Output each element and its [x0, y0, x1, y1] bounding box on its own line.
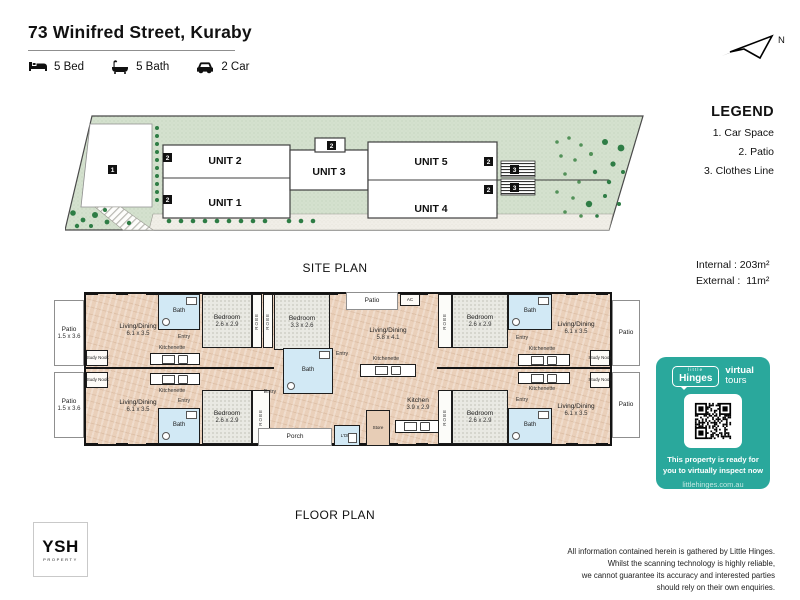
room-dimensions: 6.1 x 3.5 [564, 329, 587, 335]
room-label: Bath [173, 422, 185, 429]
bedroom-bottom-right: Bedroom2.6 x 2.9 [452, 390, 508, 444]
bath-bottom-left: Bath [158, 408, 200, 444]
room-label: AC [407, 297, 413, 302]
room-label: Kitchenette [159, 388, 186, 394]
bath-bottom-right: Bath [508, 408, 552, 444]
disclaimer: All information contained herein is gath… [567, 546, 775, 594]
bubble-tail [680, 386, 688, 390]
room-dimensions: 1.5 x 3.6 [57, 334, 80, 340]
bedroom-top-right: Bedroom2.6 x 2.9 [452, 294, 508, 348]
patio-bottom-left: Patio1.5 x 3.6 [54, 372, 84, 438]
patio-top-right: Patio [612, 300, 640, 366]
floor-plan: Patio1.5 x 3.6Patio1.5 x 3.6Living/Dinin… [52, 292, 642, 446]
site-marker-number: 2 [330, 143, 334, 150]
kitchenette-bottom-left: Kitchenette [159, 388, 186, 394]
patio-bottom-right: Patio [612, 372, 640, 438]
room-dimensions: 3.3 x 2.6 [290, 323, 313, 329]
room-label: Living/Dining [119, 399, 156, 407]
room-label: Living/Dining [369, 327, 406, 335]
north-arrow-icon: N [720, 28, 792, 67]
promo-message: This property is ready for you to virtua… [663, 454, 763, 476]
room-label: Entry [178, 334, 190, 340]
feature-label: 2 Car [221, 61, 249, 73]
room-label: Bedroom [289, 315, 315, 323]
living-middle: Living/Dining5.8 x 4.1 [369, 327, 406, 341]
legend-title: LEGEND [704, 104, 774, 120]
kitchenette-units-middle [360, 364, 416, 377]
robe-bottom-right: ROBE [438, 390, 452, 444]
kitchenette-units-bottom-right [518, 372, 570, 384]
room-label: Living/Dining [557, 403, 594, 411]
bath-middle: Bath [283, 348, 333, 394]
cooktop-icon [162, 375, 175, 384]
agency-logo: YSH PROPERTY [33, 522, 88, 577]
porch: Porch [258, 428, 332, 446]
site-marker-number: 3 [513, 167, 517, 174]
agency-name: YSH [42, 538, 78, 555]
area-line: External : 11m² [696, 274, 770, 290]
legend-items: 1. Car Space2. Patio3. Clothes Line [704, 127, 774, 177]
room-label: Patio [619, 401, 634, 409]
disclaimer-line: All information contained herein is gath… [567, 546, 775, 558]
bedroom-bottom-left: Bedroom2.6 x 2.9 [202, 390, 252, 444]
room-label: Study Nook [588, 377, 611, 382]
logo-bubble: little Hinges [672, 366, 719, 387]
entry-middle-top: Entry [336, 351, 348, 357]
room-label: Kitchenette [159, 345, 186, 351]
kitchen-units-middle [395, 420, 439, 433]
room-dimensions: 6.1 x 3.5 [126, 331, 149, 337]
title-divider [28, 50, 235, 51]
room-label: Living/Dining [557, 321, 594, 329]
entry-top-right: Entry [516, 335, 528, 341]
disclaimer-line: should rely on their own enquiries. [567, 582, 775, 594]
room-label: Kitchen [407, 397, 429, 405]
room-label: Entry [336, 351, 348, 357]
cooktop-icon [404, 422, 417, 431]
room-label: Patio [365, 297, 380, 305]
robe-2-top-left: ROBE [263, 294, 273, 348]
ac-unit: AC [400, 294, 420, 306]
room-dimensions: 6.1 x 3.5 [126, 407, 149, 413]
bath-top-left: Bath [158, 294, 200, 330]
robe-1-top-left: ROBE [252, 294, 262, 348]
entry-bottom-right: Entry [516, 397, 528, 403]
store: Store [366, 410, 390, 446]
room-label: Study Nook [588, 355, 611, 360]
party-wall-left [84, 367, 274, 369]
cooktop-icon [375, 366, 388, 375]
laundry: L'DRY [334, 425, 360, 446]
room-dimensions: 2.6 x 2.9 [468, 418, 491, 424]
area-line: Internal : 203m² [696, 258, 770, 274]
sink-icon [391, 366, 401, 375]
site-unit-label: UNIT 2 [208, 155, 241, 167]
room-label: Living/Dining [119, 323, 156, 331]
room-label: Patio [62, 326, 77, 334]
room-dimensions: 2.6 x 2.9 [215, 322, 238, 328]
site-marker-number: 1 [111, 167, 115, 174]
room-dimensions: 2.6 x 2.9 [215, 418, 238, 424]
feature-bath: 5 Bath [110, 59, 169, 74]
kitchenette-top-right: Kitchenette [529, 346, 556, 352]
site-plan-caption: SITE PLAN [230, 261, 440, 275]
room-label: Entry [516, 335, 528, 341]
bath-top-right: Bath [508, 294, 552, 330]
study-nook-bottom-right: Study Nook [590, 372, 610, 388]
room-label: Bath [524, 308, 536, 315]
living-bottom-right: Living/Dining6.1 x 3.5 [557, 403, 594, 417]
room-label: ROBE [265, 313, 270, 330]
kitchen-middle: Kitchen3.9 x 2.9 [406, 397, 429, 411]
legend: LEGEND 1. Car Space2. Patio3. Clothes Li… [704, 104, 774, 184]
room-label: ROBE [258, 409, 263, 426]
patio-top-left: Patio1.5 x 3.6 [54, 300, 84, 366]
room-label: Bath [173, 308, 185, 315]
little-hinges-logo: little Hinges virtual tours [672, 366, 754, 387]
room-label: Entry [516, 397, 528, 403]
room-label: ROBE [254, 313, 259, 330]
legend-item: 2. Patio [704, 146, 774, 158]
property-features: 5 Bed5 Bath2 Car [28, 59, 249, 74]
north-label: N [778, 35, 785, 46]
room-label: Bedroom [214, 410, 240, 418]
cooktop-icon [531, 356, 544, 365]
cooktop-icon [531, 374, 544, 383]
room-label: Bath [302, 367, 314, 374]
room-label: Bath [524, 422, 536, 429]
kitchenette-bottom-right: Kitchenette [529, 386, 556, 392]
room-label: Kitchenette [529, 346, 556, 352]
room-dimensions: 1.5 x 3.6 [57, 406, 80, 412]
disclaimer-line: we cannot guarantee its accuracy and int… [567, 570, 775, 582]
entry-middle-bottom: Entry [264, 389, 276, 395]
legend-item: 1. Car Space [704, 127, 774, 139]
bed-icon [28, 59, 48, 74]
room-label: L'DRY [341, 433, 354, 438]
patio-middle: Patio [346, 292, 398, 310]
feature-bed: 5 Bed [28, 59, 84, 74]
floor-plan-caption: FLOOR PLAN [230, 508, 440, 522]
site-marker-number: 2 [166, 197, 170, 204]
study-nook-top-right: Study Nook [590, 350, 610, 366]
site-unit-label: UNIT 3 [312, 166, 345, 178]
bedroom-top-left: Bedroom2.6 x 2.9 [202, 294, 252, 348]
kitchenette-units-top-left [150, 353, 200, 365]
feature-car: 2 Car [195, 59, 249, 74]
living-top-right: Living/Dining6.1 x 3.5 [557, 321, 594, 335]
site-marker-number: 2 [487, 159, 491, 166]
feature-label: 5 Bath [136, 61, 169, 73]
kitchenette-top-left: Kitchenette [159, 345, 186, 351]
site-marker-number: 3 [513, 185, 517, 192]
room-label: Bedroom [467, 314, 493, 322]
room-dimensions: 2.6 x 2.9 [468, 322, 491, 328]
robe-top-right: ROBE [438, 294, 452, 348]
study-nook-top-left: Study Nook [86, 350, 108, 366]
kitchenette-units-top-right [518, 354, 570, 366]
room-dimensions: 3.9 x 2.9 [406, 405, 429, 411]
room-label: Kitchenette [529, 386, 556, 392]
site-marker-number: 2 [487, 187, 491, 194]
product-word-2: tours [725, 376, 754, 386]
sink-icon [547, 356, 557, 365]
room-label: Study Nook [85, 355, 108, 360]
room-label: ROBE [442, 409, 447, 426]
page-title: 73 Winifred Street, Kuraby [28, 22, 252, 43]
study-nook-bottom-left: Study Nook [86, 372, 108, 388]
site-unit-label: UNIT 4 [414, 203, 447, 215]
car-icon [195, 59, 215, 74]
entry-top-left: Entry [178, 334, 190, 340]
disclaimer-line: Whilst the scanning technology is highly… [567, 558, 775, 570]
cooktop-icon [162, 355, 175, 364]
sink-icon [420, 422, 430, 431]
room-label: Bedroom [467, 410, 493, 418]
site-unit-label: UNIT 1 [208, 197, 241, 209]
brand-name: Hinges [679, 373, 712, 384]
site-unit-label: UNIT 5 [414, 156, 447, 168]
qr-code [684, 394, 742, 449]
kitchenette-units-bottom-left [150, 373, 200, 385]
room-label: Porch [287, 433, 304, 441]
bath-icon [110, 59, 130, 74]
site-marker-number: 2 [166, 155, 170, 162]
feature-label: 5 Bed [54, 61, 84, 73]
sink-icon [178, 375, 188, 384]
party-wall-right [437, 367, 612, 369]
room-dimensions: 6.1 x 3.5 [564, 411, 587, 417]
flyer-page: 73 Winifred Street, Kuraby 5 Bed5 Bath2 … [0, 0, 800, 600]
room-label: Store [373, 425, 384, 430]
site-plan: UNIT 2UNIT 1UNIT 3UNIT 5UNIT 4 12222233 [65, 112, 645, 237]
virtual-tour-card: little Hinges virtual tours This propert… [656, 357, 770, 489]
living-bottom-left: Living/Dining6.1 x 3.5 [119, 399, 156, 413]
promo-url: littlehinges.com.au [682, 480, 743, 489]
legend-item: 3. Clothes Line [704, 165, 774, 177]
room-label: Patio [619, 329, 634, 337]
room-label: Entry [264, 389, 276, 395]
entry-bottom-left: Entry [178, 398, 190, 404]
room-label: ROBE [442, 313, 447, 330]
room-label: Study Nook [85, 377, 108, 382]
bedroom-top-middle: Bedroom3.3 x 2.6 [274, 294, 330, 350]
sink-icon [178, 355, 188, 364]
room-label: Bedroom [214, 314, 240, 322]
sink-icon [547, 374, 557, 383]
living-top-left: Living/Dining6.1 x 3.5 [119, 323, 156, 337]
room-label: Kitchenette [373, 356, 400, 362]
area-summary: Internal : 203m²External : 11m² [696, 258, 770, 290]
kitchenette-middle: Kitchenette [373, 356, 400, 362]
room-dimensions: 5.8 x 4.1 [376, 335, 399, 341]
room-label: Entry [178, 398, 190, 404]
agency-subtitle: PROPERTY [43, 557, 78, 562]
room-label: Patio [62, 398, 77, 406]
